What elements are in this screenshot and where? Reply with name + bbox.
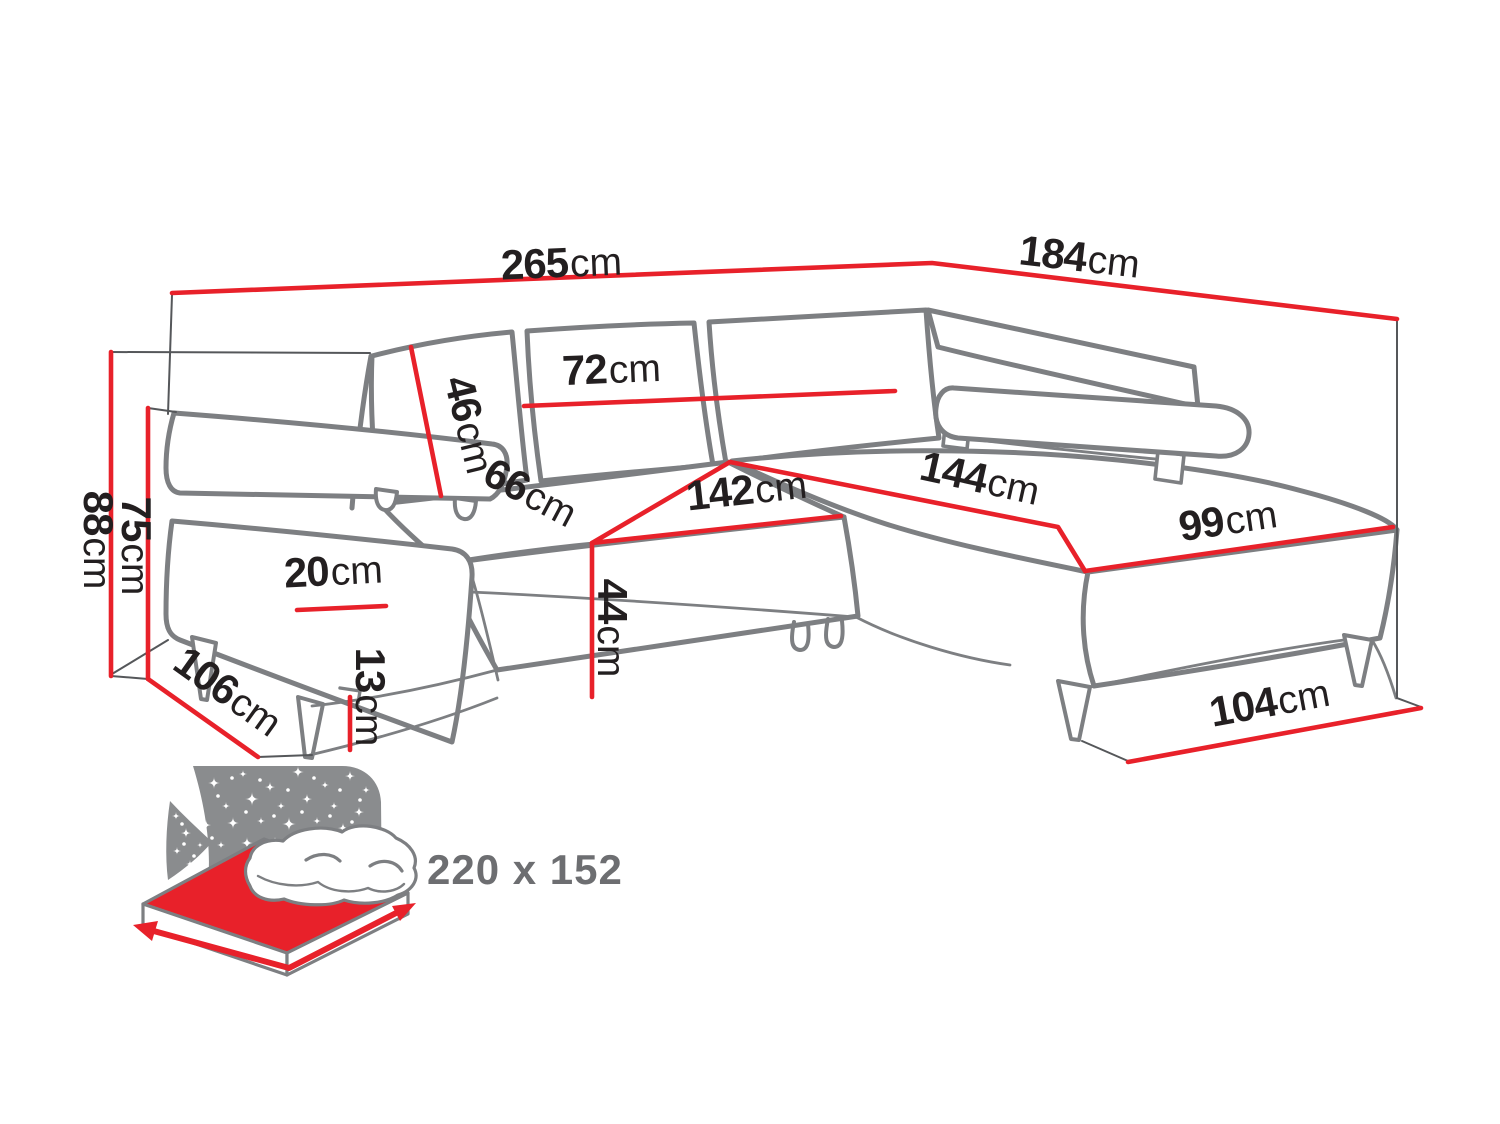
armrest-pad-peg-right <box>455 498 476 519</box>
label-back-cushion-width: 72cm <box>561 343 662 394</box>
label-leg-height: 13cm <box>347 648 394 747</box>
label-armrest-width: 20cm <box>283 544 384 596</box>
label-backrest-height: 75cm <box>113 497 160 596</box>
armrest-pad-peg-left <box>376 489 397 510</box>
leg-chaise-front <box>1058 681 1090 740</box>
sofa-dimension-diagram: 265cm 184cm 88cm 75cm 46cm 72cm 66cm 142… <box>0 0 1500 1124</box>
headrest-bolster <box>936 388 1249 456</box>
sleeping-surface-icon: 220 x 152 <box>133 766 623 975</box>
size-arrow-head-left <box>133 921 158 941</box>
back-cushion-right <box>709 310 939 463</box>
label-seat-height: 44cm <box>589 579 636 678</box>
leg-chaise-right <box>1344 635 1372 686</box>
label-overall-width: 265cm <box>500 236 623 288</box>
sleeping-area-size: 220 x 152 <box>427 846 623 893</box>
dim-line-overall-width-depth <box>172 263 1397 319</box>
